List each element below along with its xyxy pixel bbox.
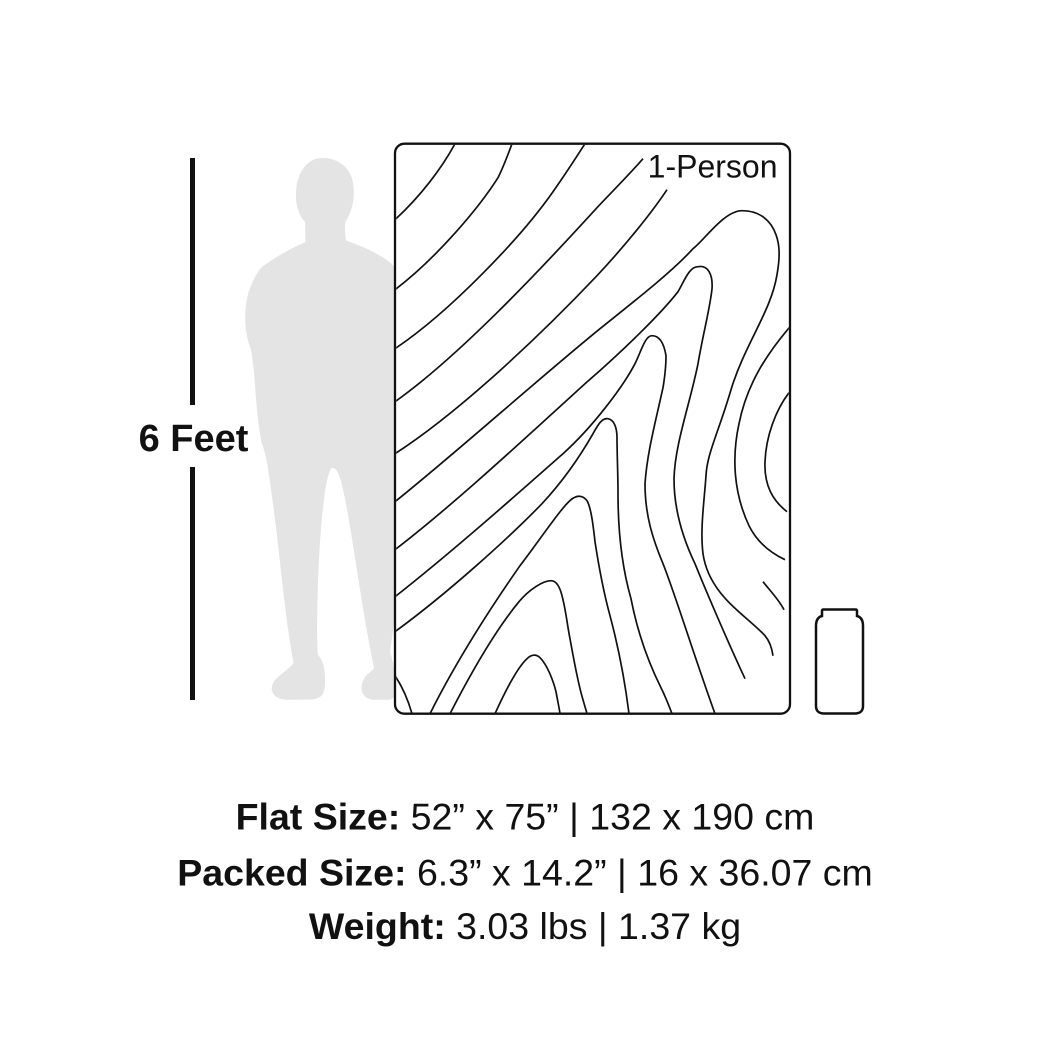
svg-text:Packed Size: 6.3” x 14.2” | 16: Packed Size: 6.3” x 14.2” | 16 x 36.07 c… <box>177 852 873 894</box>
svg-text:Weight: 3.03 lbs | 1.37 kg: Weight: 3.03 lbs | 1.37 kg <box>309 905 741 947</box>
svg-text:1-Person: 1-Person <box>648 149 778 185</box>
svg-text:6 Feet: 6 Feet <box>139 418 249 460</box>
svg-text:Flat Size: 52” x 75” | 132 x 1: Flat Size: 52” x 75” | 132 x 190 cm <box>236 796 815 838</box>
